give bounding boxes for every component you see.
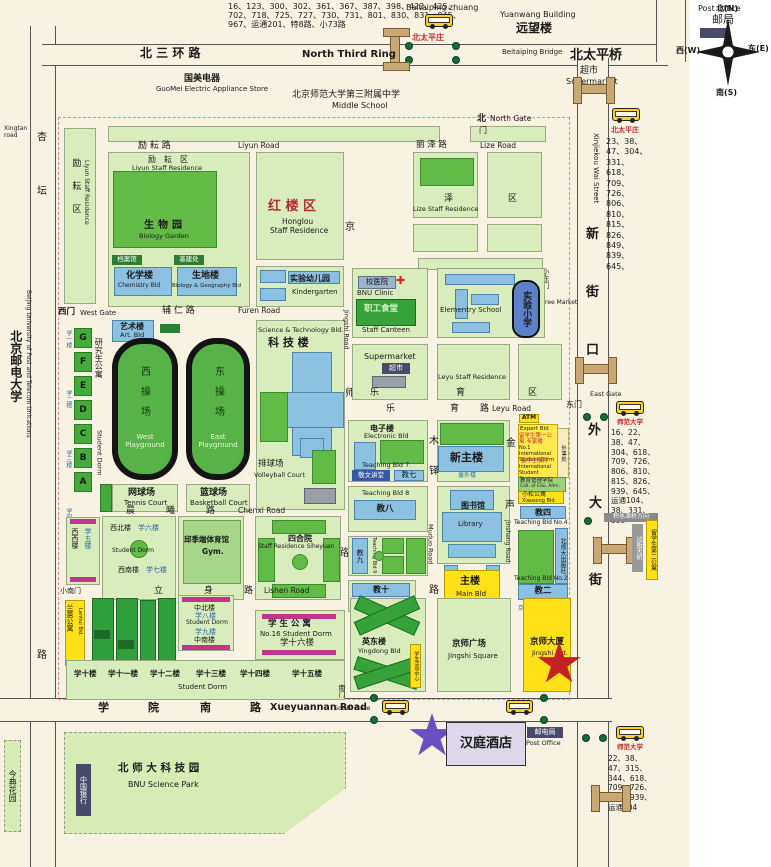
- jindian-garden-block: 今典花园: [4, 740, 21, 832]
- compass-east-label: 东(E): [748, 44, 769, 53]
- teaching9-zh: 教九: [356, 549, 364, 563]
- footbridge-icon: [596, 544, 632, 554]
- library-building: [448, 544, 496, 558]
- bank-of-china-zh: 中国银行: [79, 776, 87, 804]
- xueyuannan-char: 学: [98, 702, 109, 715]
- green-court: [382, 556, 404, 574]
- middle-school-en: Middle School: [332, 101, 388, 110]
- bus-stop-dot: [600, 413, 608, 421]
- teaching7-en: Teaching Bld 7: [362, 462, 409, 469]
- xueyilou-label: 学一楼: [64, 330, 71, 360]
- stand-building: [100, 484, 112, 512]
- leyu-road-char: 育: [450, 404, 459, 414]
- compass-north-label: 北(N): [716, 4, 738, 13]
- jinsheng-road-en: Jinsheng Road: [503, 520, 510, 568]
- post-office-south-en: Post Office: [526, 740, 561, 747]
- yuanwang-en: Yuanwang Building: [500, 10, 576, 19]
- jingshi-square-zh: 京师广场: [452, 640, 486, 650]
- supermarket-zh: 超市: [389, 364, 403, 372]
- south-dorm-en: Student Dorm: [178, 683, 227, 691]
- green-court: [312, 450, 336, 484]
- xueyuannan-char: 院: [148, 702, 159, 715]
- magenta-bar: [182, 645, 230, 650]
- grad-dorm-letter: C: [80, 429, 87, 439]
- grad-dorm-letter: F: [80, 357, 86, 367]
- teaching8-en: Teaching Bld 8: [362, 490, 409, 497]
- jingwen-hall-zh: 敬文讲堂: [358, 472, 384, 479]
- liyun-road-zh: 励 耘 路: [138, 141, 171, 151]
- grad-dorm-C: C: [74, 424, 92, 444]
- lize-road-zh: 丽 泽 路: [416, 141, 447, 151]
- green-circle: [374, 551, 384, 561]
- guomei-en: GuoMei Electric Appliance Store: [156, 85, 268, 93]
- bupt-en: Beijing University of Post and Telecom U…: [24, 290, 31, 500]
- chenxi-road-char: 晨: [126, 506, 135, 516]
- lishen-road-char: 路: [244, 586, 253, 596]
- supermarket-zh-bar: 超市: [382, 363, 410, 374]
- xinjiekou-char: 口: [586, 344, 599, 359]
- muduo-road-char: 铎: [429, 466, 439, 478]
- science-park-en: BNU Science Park: [128, 780, 199, 789]
- siheyuan-en: Staff Residence Siheyuan: [258, 544, 334, 551]
- green-court: [406, 538, 426, 574]
- footbridge-icon: [594, 792, 628, 802]
- muduo-road-char: 路: [429, 585, 439, 597]
- compass-south-label: 南(S): [716, 88, 737, 97]
- atm-label: ATM: [519, 414, 539, 423]
- lize-block-b: [487, 152, 542, 218]
- west-gate-en: West Gate: [80, 309, 116, 317]
- east-playground-zh: 东操场: [212, 366, 224, 432]
- grad-dorm-zh: 研究生公寓: [94, 338, 103, 426]
- capital-construction-label: 基建处: [174, 255, 204, 265]
- xinjiekou-street-en: Xinjiekou Wai Street: [592, 133, 600, 203]
- dorm-slab: [116, 598, 138, 664]
- xueyuannan-char: 路: [250, 702, 261, 715]
- teaching9-bar: 教九: [352, 538, 368, 574]
- jingshi-road-char: 京: [345, 222, 355, 234]
- elementary-building: [455, 289, 468, 319]
- main-building-zh: 主楼: [460, 576, 480, 588]
- grad-dorm-E: E: [74, 376, 92, 396]
- lize-char: 区: [508, 194, 517, 204]
- art-building-zh: 艺术楼: [120, 322, 144, 331]
- south-gate-zh: 南门: [338, 684, 346, 704]
- elementary-building: [445, 274, 515, 285]
- leyu-area-char: 区: [528, 388, 537, 398]
- small-south-gate: 小南门: [60, 587, 81, 595]
- bus-icon-south-east: [506, 700, 533, 713]
- xueyuannan-char: 南: [200, 702, 211, 715]
- bus-icon-south-street: [616, 726, 644, 739]
- chenxi-road-char: 路: [206, 506, 215, 516]
- footbridge-icon: [576, 84, 612, 94]
- grad-dorm-letter: E: [80, 381, 86, 391]
- teaching10-zh: 教十: [373, 585, 389, 594]
- siheyuan-zh: 四合院: [288, 534, 312, 543]
- chenxi-road-char: 曦: [166, 506, 175, 516]
- dorm-slab: [158, 598, 176, 664]
- yingdong-zh: 英东楼: [362, 637, 386, 646]
- atm-text: ATM: [522, 415, 536, 422]
- supermarket-north-zh: 超市: [580, 66, 598, 76]
- dorm-slab-label: [94, 630, 110, 639]
- free-market-en: Free Market: [542, 300, 577, 307]
- liyun-strip-en: Liyun Staff Residence: [82, 160, 89, 290]
- zhongbei-d: 学九楼: [195, 628, 216, 636]
- bus-stop-northeast-name: 北太平庄: [611, 126, 639, 134]
- gym-en: Gym.: [202, 548, 224, 557]
- grad-dorm-letter: D: [79, 405, 86, 415]
- magenta-bar: [262, 650, 336, 655]
- bus-stop-north-name-zh: 北太平庄: [412, 33, 444, 42]
- compass-west-label: 西(W): [676, 46, 700, 55]
- hanting-hotel-zh: 汉庭酒店: [460, 737, 512, 752]
- dorm-label: 学十二楼: [150, 670, 180, 679]
- bus-routes-east: 16、22、38、47、304、618、709、726、806、810、815、…: [611, 428, 659, 526]
- teaching8-zh: 教八: [376, 505, 393, 515]
- intl-dorm2-text: 留学生第二公寓: [649, 529, 656, 571]
- teaching8-bar: 教八: [354, 500, 416, 520]
- dorm16-zh: 学 生 公 寓: [268, 620, 311, 630]
- foreign-affairs-strip: 外事处: [557, 428, 569, 478]
- supermarket-en: Supermarket: [364, 352, 416, 361]
- chenxi-road-en: Chenxi Road: [238, 507, 285, 516]
- xuewu-a: 西西楼: [71, 528, 79, 574]
- elementary-en: Elementry School: [440, 306, 501, 314]
- dorm-x6-zh: 学六楼: [138, 524, 159, 532]
- bus-stop-dot: [452, 56, 460, 64]
- xinjiekou-char: 外: [588, 424, 601, 439]
- lize-block-c: [413, 224, 478, 252]
- shiyan-primary-building: 实验小学: [512, 280, 540, 338]
- xinjiekou-char: 新: [586, 228, 599, 243]
- bank-of-china-building: 中国银行: [76, 764, 91, 816]
- zhongbei-e: 中南楼: [194, 636, 215, 644]
- xingtan-char: 路: [37, 650, 47, 662]
- teaching4-zh: 教四: [535, 508, 551, 517]
- grad-dorm-letter: A: [80, 477, 87, 487]
- jindian-garden-zh: 今典花园: [8, 770, 17, 802]
- bus-stop-dot: [584, 517, 592, 525]
- xuewu-b: 学五楼: [84, 528, 92, 574]
- destination-star-icon: ★: [534, 636, 584, 692]
- post-office-south-zh: 邮电局: [535, 728, 556, 736]
- campus-map: 16、123、300、302、361、367、387、398、422、425、7…: [0, 0, 771, 867]
- gym-zh: 邱季端体育馆: [184, 536, 229, 545]
- beitaiping-bridge-zh: 北太平桥: [570, 49, 622, 64]
- bus-stop-dot: [583, 413, 591, 421]
- bus-icon-south-west: [382, 700, 409, 713]
- leyu-road-char: 乐: [386, 404, 395, 414]
- bio-geo-zh: 生地楼: [192, 271, 219, 281]
- post-office-south-bar: 邮电局: [527, 727, 563, 738]
- lize-residence-en: Lize Staff Residence: [413, 206, 478, 213]
- elementary-building: [452, 322, 490, 333]
- zhongbei-a: 中北楼: [194, 604, 215, 612]
- lishen-road-en: Lishen Road: [264, 587, 310, 596]
- kindergarten-building: [260, 288, 286, 301]
- dorm-slab: [140, 600, 156, 662]
- elementary-building: [471, 294, 499, 305]
- dorm-slab-label: [118, 640, 134, 649]
- grad-dorm-letter: B: [80, 453, 87, 463]
- jingshi-square-en: Jingshi Square: [448, 652, 498, 660]
- student-activity-strip: 学生活动中心: [410, 644, 421, 688]
- expert-zh: 留学生第一公寓·专家楼: [519, 433, 555, 446]
- dorm16-en: No.16 Student Dorm: [260, 630, 332, 638]
- liyun-strip-zh: 励耘区: [70, 158, 80, 278]
- basketball-zh: 篮球场: [200, 488, 227, 498]
- dorm-nw-zh: 西北楼: [110, 524, 131, 532]
- staff-canteen-zh: 职工食堂: [364, 305, 398, 315]
- bus-icon-northeast: [612, 108, 640, 121]
- grad-dorm-F: F: [74, 352, 92, 372]
- xueerlou-label: 学二楼: [64, 390, 71, 420]
- clinic-zh: 校医院: [366, 278, 389, 287]
- grad-dorm-letter: G: [79, 333, 86, 343]
- xinjiekou-char: 街: [589, 574, 602, 589]
- shiyan-primary-zh: 实验小学: [521, 291, 531, 327]
- bus-stop-dot: [452, 42, 460, 50]
- west-playground-en: West Playground: [122, 430, 168, 452]
- xingtan-road: [30, 26, 56, 867]
- library-zh: 图书馆: [458, 496, 488, 516]
- grad-dorm-D: D: [74, 400, 92, 420]
- north-gate-door: 门: [479, 126, 487, 135]
- lize-road-en: Lize Road: [480, 142, 516, 151]
- dorm-sw-zh: 西南楼: [118, 566, 139, 574]
- leyu-area-char: 乐: [370, 388, 379, 398]
- dorm-label: 学十四楼: [240, 670, 270, 679]
- bus-stop-dot: [540, 694, 548, 702]
- lize-char: 泽: [444, 194, 453, 204]
- green-band: [108, 126, 440, 142]
- magenta-bar: [182, 597, 230, 602]
- science-park-block: [64, 732, 346, 834]
- east-playground-en: East Playground: [194, 430, 242, 452]
- north-gate-en: North Gate: [490, 115, 531, 124]
- muduo-road-char: 木: [429, 436, 439, 448]
- student-activity-text: 学生活动中心: [413, 651, 419, 681]
- leyu-area-char: 育: [456, 388, 465, 398]
- teaching4-en: Teaching Bld No.4: [514, 520, 568, 527]
- gray-building: [304, 488, 336, 504]
- yuanwang-zh: 远望楼: [516, 22, 552, 36]
- teaching7-bar: 教七: [394, 470, 424, 481]
- beitaiping-bridge-en: Beitaiping Bridge: [502, 48, 562, 56]
- xueyuannan-en: Xueyuannan Road: [270, 703, 367, 714]
- bus-routes-south: 22、38、47、315、344、618、709、726、826、939、运通1…: [608, 754, 656, 813]
- foreign-affairs-text: 外事处: [560, 445, 566, 462]
- grad-dorm-A: A: [74, 472, 92, 492]
- bus-stop-dot: [370, 694, 378, 702]
- lize-block-d: [487, 224, 542, 252]
- biology-garden-zh: 生物园: [144, 220, 186, 232]
- east-gate-en: East Gate: [590, 391, 622, 398]
- lize-building: [420, 158, 474, 186]
- teaching2-zh: 教二: [534, 587, 551, 597]
- dorm67-en: Student Dorm: [112, 548, 154, 555]
- new-main-note: 援外楼: [458, 473, 476, 480]
- leyu-residence-block: [437, 344, 510, 400]
- jingwen-hall-bar: 敬文讲堂: [352, 470, 390, 481]
- bupt-zh: 北京邮电大学: [8, 330, 22, 500]
- red-cross-icon: ✚: [396, 275, 405, 288]
- xuesanlou-label: 学三楼: [64, 450, 71, 480]
- new-main-zh: 新主楼: [450, 452, 483, 465]
- green-court: [440, 423, 504, 445]
- green-circle: [292, 554, 308, 570]
- leyu-road-en: Leyu Road: [492, 405, 531, 414]
- chemistry-en: Chemistry Bld: [118, 283, 160, 290]
- zhongbei-c: Student Dorm: [186, 620, 228, 627]
- lanhui-zh: 兰蕙公寓: [66, 604, 74, 648]
- xingtan-char: 杏: [37, 132, 47, 144]
- green-court: [382, 538, 404, 554]
- leyu-qu-block: [518, 344, 562, 400]
- clinic-en: BNU Clinic: [357, 289, 393, 297]
- jinsheng-road-char: 金: [506, 438, 516, 450]
- footbridge-note-text: 过街天桥: [634, 536, 641, 560]
- yingdong-en: Yingdong Bld: [358, 648, 401, 655]
- xingtan-char: 坛: [37, 186, 47, 198]
- lanhui-en: Lanhui Bld.: [76, 608, 82, 648]
- bus-stop-dot: [582, 734, 590, 742]
- dorm16-zh2: 学十六楼: [280, 639, 314, 649]
- west-playground-zh: 西操场: [138, 366, 150, 432]
- teaching7-zh: 教七: [402, 471, 417, 480]
- magenta-bar: [70, 577, 96, 582]
- tennis-zh: 网球场: [128, 488, 155, 498]
- teaching2-en: Teaching Bld No.2: [514, 576, 568, 583]
- intl-dorm2-note: 留学生第二公寓: [646, 520, 658, 580]
- south-dorm-strip: [66, 660, 345, 700]
- kindergarten-building: [260, 270, 286, 283]
- guomei-zh: 国美电器: [184, 74, 220, 84]
- leyu-residence-en: Leyu Staff Residence: [438, 374, 506, 381]
- small-green-building: [160, 324, 180, 333]
- dorm-label: 学十楼: [74, 670, 97, 679]
- grad-dorm-B: B: [74, 448, 92, 468]
- direction-note-text: 积水潭桥方向: [613, 514, 649, 521]
- muduo-road-en: Muduo Road: [426, 524, 433, 572]
- volleyball-en: Volleyball Court: [254, 472, 305, 479]
- west-gate-zh: 西门: [58, 308, 75, 318]
- lishen-road-char: 立: [154, 586, 163, 596]
- dorm-x7-zh: 学七楼: [146, 566, 167, 574]
- liyun-residence-zh: 励耘区: [148, 155, 196, 164]
- main-building-en: Main Bld: [456, 590, 486, 598]
- bus-stop-dot: [540, 716, 548, 724]
- bus-icon-east: [616, 401, 644, 414]
- bus-stop-south-name: 师范大学: [617, 744, 643, 751]
- footbridge-note: 过街天桥: [632, 524, 643, 572]
- middle-school-zh: 北京师范大学第三附属中学: [292, 90, 400, 100]
- expert-en: Expert Bld: [520, 426, 549, 432]
- science-park-zh: 北 师 大 科 技 园: [118, 762, 199, 774]
- kindergarten-en: Kindergarten: [292, 288, 338, 296]
- xinjiekou-char: 大: [589, 497, 602, 512]
- bus-stop-north-name-en: Beitaiping zhuang: [406, 3, 478, 12]
- xingtan-road-en: Xingtan road: [4, 126, 30, 140]
- xiaosong-en: Xiaosong Bld.: [522, 499, 556, 505]
- bus-stop-dot: [599, 734, 607, 742]
- bus-stop-dot: [370, 716, 378, 724]
- siheyuan-building: [272, 520, 326, 534]
- hanting-hotel-box: 汉庭酒店: [446, 722, 526, 766]
- footbridge-icon: [578, 364, 614, 374]
- bus-stop-east-name: 师范大学: [617, 419, 643, 426]
- bio-geo-en: Biology & Geography Bld: [172, 283, 241, 289]
- teaching4-bar: 教四: [520, 506, 566, 519]
- honglou-zh: 红 楼 区: [268, 200, 316, 215]
- leyu-road-char: 路: [480, 404, 489, 414]
- dorm-label: 学十一楼: [108, 670, 138, 679]
- xinjiekou-char: 街: [586, 286, 599, 301]
- library-en: Library: [458, 520, 482, 528]
- bnu-press-zh: 北师大出版社: [558, 538, 565, 574]
- furen-road-en: Furen Road: [238, 307, 280, 316]
- archives-label: 档案馆: [112, 255, 142, 265]
- liyun-road-en: Liyun Road: [238, 142, 279, 151]
- bus-routes-northeast: 23、38、47、304、331、618、709、726、806、810、815…: [606, 137, 652, 272]
- volleyball-zh: 排球场: [258, 460, 284, 470]
- staff-canteen-en: Staff Canteen: [362, 326, 410, 334]
- edu-college-en: Coll. of Edu. Adm.: [520, 484, 560, 489]
- clinic-bar: 校医院: [358, 276, 396, 289]
- north-third-ring-zh: 北 三 环 路: [140, 47, 201, 61]
- dorm-label: 学十三楼: [196, 670, 226, 679]
- magenta-bar: [70, 519, 96, 524]
- furen-road-zh: 辅 仁 路: [162, 306, 195, 316]
- bus-stop-dot: [405, 42, 413, 50]
- chemistry-zh: 化学楼: [126, 271, 153, 281]
- kindergarten-zh: 实验幼儿园: [290, 274, 330, 283]
- jingshi-road-en: Jingshi Road: [342, 310, 349, 354]
- green-court: [260, 392, 288, 442]
- dorm-label: 学十五楼: [292, 670, 322, 679]
- sci-tech-zh: 科 技 楼: [268, 337, 309, 350]
- biology-garden-en: Biology Garden: [139, 233, 189, 240]
- north-third-ring-en: North Third Ring: [302, 49, 396, 61]
- honglou-en2: Staff Residence: [270, 227, 328, 236]
- north-gate-zh: 北: [477, 114, 486, 124]
- jinsheng-road-char: 声: [505, 500, 515, 512]
- grad-dorm-G: G: [74, 328, 92, 348]
- bus-icon-north: [425, 14, 453, 27]
- supermarket-building: [372, 376, 406, 388]
- east-gate-zh: 东门: [566, 400, 582, 409]
- sci-tech-en: Science & Technology Bld.: [258, 327, 343, 334]
